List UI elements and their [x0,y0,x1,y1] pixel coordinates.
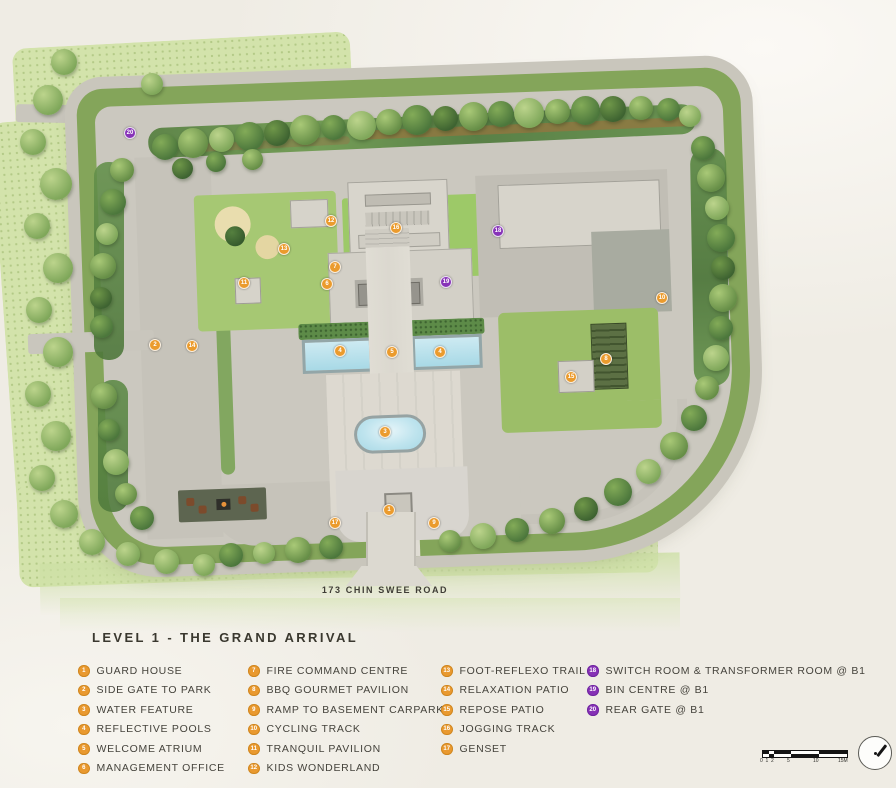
scale-label: 5 [787,758,790,764]
tree-icon [253,542,275,564]
legend-label: WELCOME ATRIUM [97,743,203,755]
tree-icon [103,449,129,475]
tree-icon [657,98,680,121]
legend-label: BBQ GOURMET PAVILION [267,684,409,696]
tree-icon [433,106,458,131]
map-marker-12: 12 [325,215,337,227]
tree-icon [571,96,600,125]
legend-label: MANAGEMENT OFFICE [97,762,225,774]
deck-furniture [250,504,258,512]
tree-icon [90,253,116,279]
map-marker-11: 11 [238,277,250,289]
deck-furniture [198,505,206,513]
map-marker-5: 5 [386,346,398,358]
tree-icon [154,549,179,574]
legend-badge-20: 20 [587,704,599,716]
tree-icon [209,127,234,152]
legend-label: GENSET [460,743,507,755]
tree-icon [90,315,113,338]
legend-badge-11: 11 [248,743,260,755]
scale-label: 0 [760,758,763,764]
scale-label: 15M [838,758,848,764]
building-detail [365,192,431,206]
site-plan-page: 173 CHIN SWEE ROAD LEVEL 1 - THE GRAND A… [0,0,896,788]
compass-hub [874,752,877,755]
legend-label: BIN CENTRE @ B1 [606,684,709,696]
tree-icon [110,158,134,182]
map-marker-18: 18 [492,225,504,237]
scale-bar-labels: 01251015M [762,758,852,766]
deck-furniture [238,496,246,504]
tree-icon [96,223,118,245]
tree-icon [115,483,137,505]
tree-icon [285,537,311,563]
legend-column: 1GUARD HOUSE2SIDE GATE TO PARK3WATER FEA… [78,665,225,774]
legend-label: SWITCH ROOM & TRANSFORMER ROOM @ B1 [606,665,866,677]
page-title: LEVEL 1 - THE GRAND ARRIVAL [92,630,358,645]
tree-icon [691,136,715,160]
tree-icon [681,405,707,431]
legend-label: TRANQUIL PAVILION [267,743,381,755]
tree-icon [695,376,719,400]
tree-icon [514,98,544,128]
legend-item: 12KIDS WONDERLAND [248,763,444,775]
compass-needle [876,744,887,757]
play-pad [290,199,329,228]
legend-badge-7: 7 [248,665,260,677]
legend-badge-1: 1 [78,665,90,677]
map-marker-14: 14 [186,340,198,352]
tree-icon [539,508,565,534]
legend-label: CYCLING TRACK [267,723,361,735]
map-marker-13: 13 [278,243,290,255]
tree-icon [488,101,514,127]
tree-icon [40,168,72,200]
legend-label: GUARD HOUSE [97,665,183,677]
tree-icon [707,224,735,252]
tree-icon [604,478,632,506]
tree-icon [225,226,246,247]
tree-icon [43,337,73,367]
tree-icon [172,158,193,179]
tree-icon [193,554,215,576]
scale-bar: 01251015M [762,750,852,768]
tree-icon [545,99,570,124]
legend-badge-17: 17 [441,743,453,755]
legend-label: REPOSE PATIO [460,704,545,716]
legend-item: 13FOOT-REFLEXO TRAIL [441,665,586,677]
tree-icon [459,102,488,131]
map-marker-3: 3 [379,426,391,438]
legend-item: 9RAMP TO BASEMENT CARPARK [248,704,444,716]
map-marker-17: 17 [329,517,341,529]
tree-icon [43,253,73,283]
legend-label: REAR GATE @ B1 [606,704,705,716]
legend-item: 4REFLECTIVE POOLS [78,724,225,736]
map-marker-16: 16 [390,222,402,234]
scale-label: 10 [813,758,819,764]
tree-icon [697,164,725,192]
tree-icon [319,535,343,559]
tree-icon [50,500,78,528]
legend-item: 11TRANQUIL PAVILION [248,743,444,755]
legend-badge-2: 2 [78,685,90,697]
legend-badge-5: 5 [78,743,90,755]
legend-item: 1GUARD HOUSE [78,665,225,677]
tree-icon [242,149,263,170]
tree-icon [26,297,52,323]
entrance-steps [365,228,410,248]
jogging-track-curve [517,399,691,525]
park-fade [60,598,680,632]
tree-icon [264,120,290,146]
tree-icon [505,518,529,542]
legend-item: 14RELAXATION PATIO [441,685,586,697]
tree-icon [709,284,737,312]
tree-icon [98,419,120,441]
map-marker-8: 8 [600,353,612,365]
reflective-pool-right [412,334,483,370]
legend-item: 15REPOSE PATIO [441,704,586,716]
map-marker-6: 6 [321,278,333,290]
legend-badge-8: 8 [248,685,260,697]
legend-item: 19BIN CENTRE @ B1 [587,685,866,697]
legend-badge-4: 4 [78,724,90,736]
legend-label: RAMP TO BASEMENT CARPARK [267,704,444,716]
tree-icon [703,345,729,371]
legend-badge-16: 16 [441,724,453,736]
scale-label: 1 [766,758,769,764]
legend-item: 7FIRE COMMAND CENTRE [248,665,444,677]
tree-icon [660,432,688,460]
tree-icon [130,506,154,530]
legend-item: 16JOGGING TRACK [441,724,586,736]
tree-icon [152,134,178,160]
tree-icon [402,105,432,135]
map-marker-9: 9 [428,517,440,529]
tree-icon [679,105,701,127]
legend-column: 7FIRE COMMAND CENTRE8BBQ GOURMET PAVILIO… [248,665,444,774]
tree-icon [24,213,50,239]
legend-badge-9: 9 [248,704,260,716]
legend-label: SIDE GATE TO PARK [97,684,212,696]
tree-icon [470,523,496,549]
legend-item: 5WELCOME ATRIUM [78,743,225,755]
tree-icon [79,529,105,555]
map-marker-19: 19 [440,276,452,288]
legend-item: 20REAR GATE @ B1 [587,704,866,716]
legend-label: FOOT-REFLEXO TRAIL [460,665,586,677]
tree-icon [141,73,163,95]
legend-item: 18SWITCH ROOM & TRANSFORMER ROOM @ B1 [587,665,866,677]
legend-column: 13FOOT-REFLEXO TRAIL14RELAXATION PATIO15… [441,665,586,755]
north-arrow-compass [858,736,892,770]
tree-icon [116,542,140,566]
legend-badge-14: 14 [441,685,453,697]
map-marker-10: 10 [656,292,668,304]
legend-item: 10CYCLING TRACK [248,724,444,736]
legend-label: KIDS WONDERLAND [267,762,381,774]
tree-icon [290,115,320,145]
sand-play-area [255,235,280,260]
tree-icon [376,109,402,135]
map-marker-1: 1 [383,504,395,516]
tree-icon [100,189,126,215]
legend-badge-13: 13 [441,665,453,677]
legend-item: 8BBQ GOURMET PAVILION [248,685,444,697]
scale-label: 2 [771,758,774,764]
map-marker-7: 7 [329,261,341,273]
tree-icon [91,383,117,409]
tree-icon [709,316,733,340]
tree-icon [347,111,376,140]
legend-badge-3: 3 [78,704,90,716]
tree-icon [90,287,112,309]
tree-icon [600,96,626,122]
legend-item: 17GENSET [441,743,586,755]
legend-label: REFLECTIVE POOLS [97,723,212,735]
tree-icon [629,96,653,120]
tree-icon [439,530,461,552]
tree-icon [20,129,46,155]
tree-icon [705,196,729,220]
map-marker-15: 15 [565,371,577,383]
tree-icon [574,497,598,521]
legend-label: RELAXATION PATIO [460,684,570,696]
legend-item: 6MANAGEMENT OFFICE [78,763,225,775]
legend-label: JOGGING TRACK [460,723,556,735]
road-label: 173 CHIN SWEE ROAD [285,585,485,595]
tree-icon [235,122,264,151]
tree-icon [33,85,63,115]
tree-icon [636,459,661,484]
legend-badge-18: 18 [587,665,599,677]
flame-icon [221,502,226,507]
tree-icon [321,115,346,140]
legend-badge-12: 12 [248,763,260,775]
deck-furniture [186,498,194,506]
legend-label: WATER FEATURE [97,704,194,716]
tree-icon [25,381,51,407]
tree-icon [206,152,226,172]
legend-badge-19: 19 [587,685,599,697]
tree-icon [711,256,735,280]
kids-wonderland-garden [194,191,341,332]
legend-item: 2SIDE GATE TO PARK [78,685,225,697]
tree-icon [219,543,243,567]
legend-badge-6: 6 [78,763,90,775]
legend-item: 3WATER FEATURE [78,704,225,716]
tree-icon [29,465,55,491]
lounge-deck [178,487,267,522]
legend-badge-15: 15 [441,704,453,716]
map-marker-4: 4 [434,346,446,358]
map-marker-4: 4 [334,345,346,357]
legend-badge-10: 10 [248,724,260,736]
fire-pit [216,499,230,510]
tree-icon [178,128,208,158]
legend-label: FIRE COMMAND CENTRE [267,665,409,677]
legend-column: 18SWITCH ROOM & TRANSFORMER ROOM @ B119B… [587,665,866,716]
map-marker-2: 2 [149,339,161,351]
tree-icon [51,49,77,75]
tree-icon [41,421,71,451]
map-marker-20: 20 [124,127,136,139]
scale-bar-segments [762,750,848,758]
